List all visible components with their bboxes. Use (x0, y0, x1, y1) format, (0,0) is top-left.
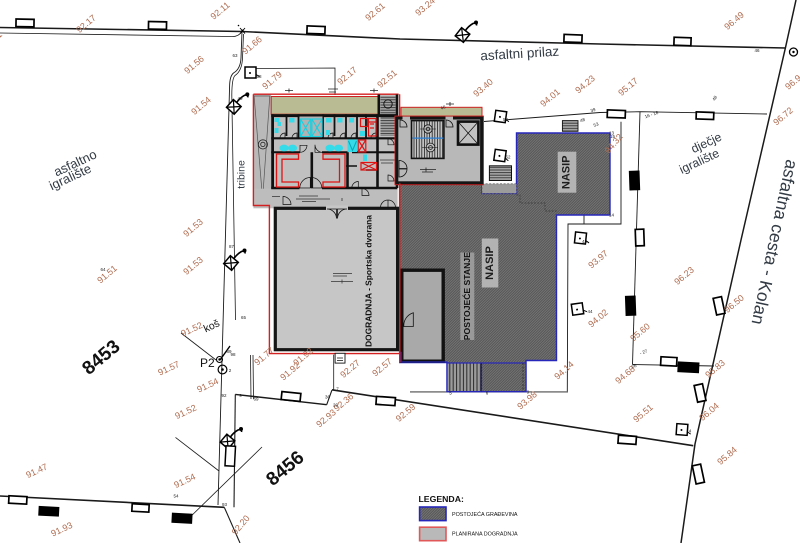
svg-text:15: 15 (610, 134, 616, 139)
svg-text:69: 69 (253, 397, 259, 402)
svg-text:49: 49 (237, 96, 243, 101)
svg-text:DOGRADNJA - Sportska dvorana: DOGRADNJA - Sportska dvorana (364, 215, 374, 347)
svg-text:LEGENDA:: LEGENDA: (419, 494, 464, 504)
svg-text:P2: P2 (200, 356, 215, 370)
svg-text:65: 65 (241, 315, 247, 320)
svg-text:36: 36 (325, 395, 331, 400)
svg-text:44: 44 (587, 309, 593, 314)
svg-text:43: 43 (582, 239, 588, 244)
svg-text:29: 29 (333, 403, 339, 408)
svg-text:54: 54 (173, 494, 179, 499)
svg-text:58: 58 (256, 74, 262, 79)
svg-text:POSTOJEĆE STANJE: POSTOJEĆE STANJE (461, 252, 472, 340)
svg-text:NASIP: NASIP (484, 246, 496, 280)
svg-text:52: 52 (503, 117, 509, 122)
svg-text:98: 98 (230, 352, 236, 357)
svg-text:NASIP: NASIP (561, 155, 573, 189)
svg-text:64: 64 (100, 267, 106, 272)
svg-text:tribine: tribine (236, 160, 248, 189)
svg-text:62: 62 (505, 155, 511, 160)
svg-text:46: 46 (754, 48, 760, 53)
svg-text:63: 63 (232, 53, 238, 58)
svg-text:92: 92 (221, 393, 227, 398)
svg-text:PLANIRANA DOGRADNJA: PLANIRANA DOGRADNJA (452, 532, 518, 538)
svg-text:14: 14 (609, 213, 615, 218)
svg-text:93: 93 (222, 502, 228, 507)
svg-text:POSTOJEĆA GRAĐEVINA: POSTOJEĆA GRAĐEVINA (452, 511, 518, 518)
svg-text:87: 87 (229, 244, 235, 249)
